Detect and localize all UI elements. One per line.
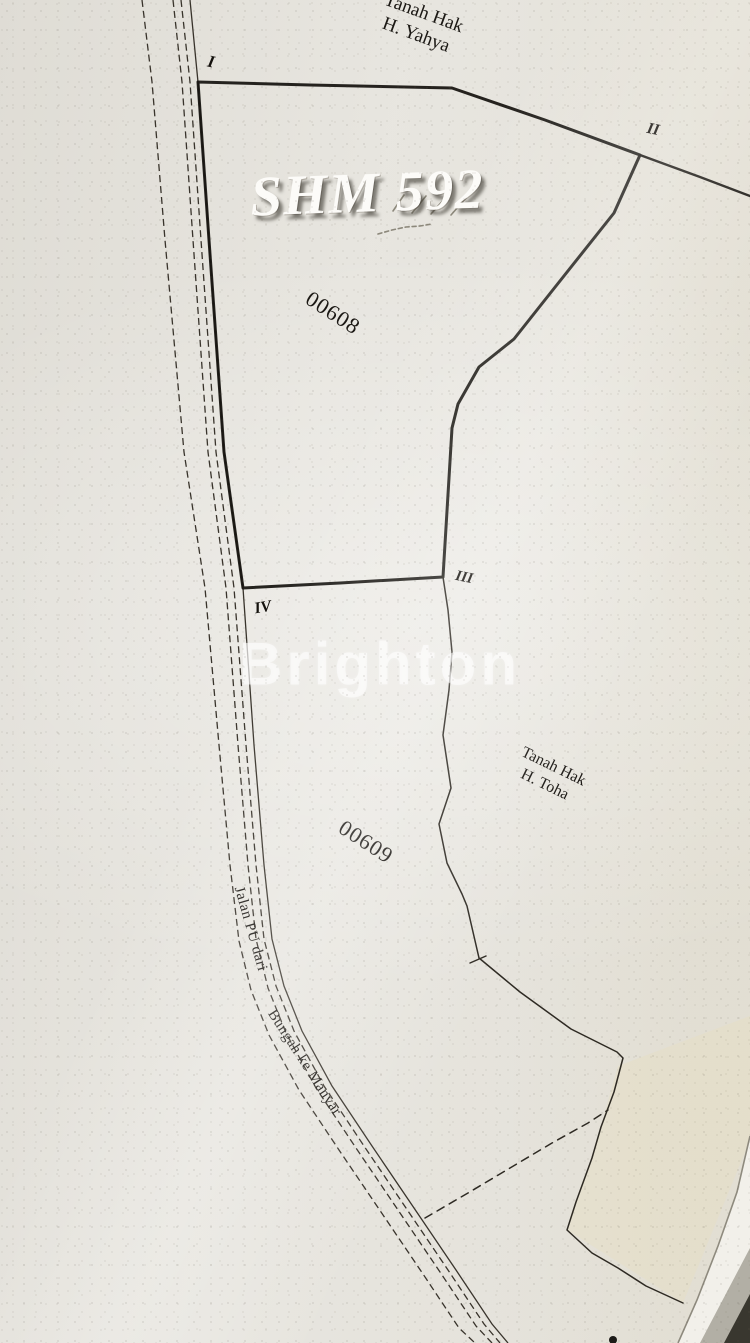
brighton-watermark: Brighton xyxy=(239,630,521,699)
pencil-underline xyxy=(378,224,432,234)
certificate-number-overlay: SHM 592 xyxy=(249,156,485,229)
corner-marker-iii: III xyxy=(454,568,475,588)
scanned-land-certificate-map: Tanah Hak H. Yahya SHM 592 00608 00609 T… xyxy=(0,0,750,1343)
boundary-east-of-ii xyxy=(640,155,750,196)
corner-marker-iv: IV xyxy=(253,598,273,619)
ink-blot xyxy=(609,1336,617,1343)
